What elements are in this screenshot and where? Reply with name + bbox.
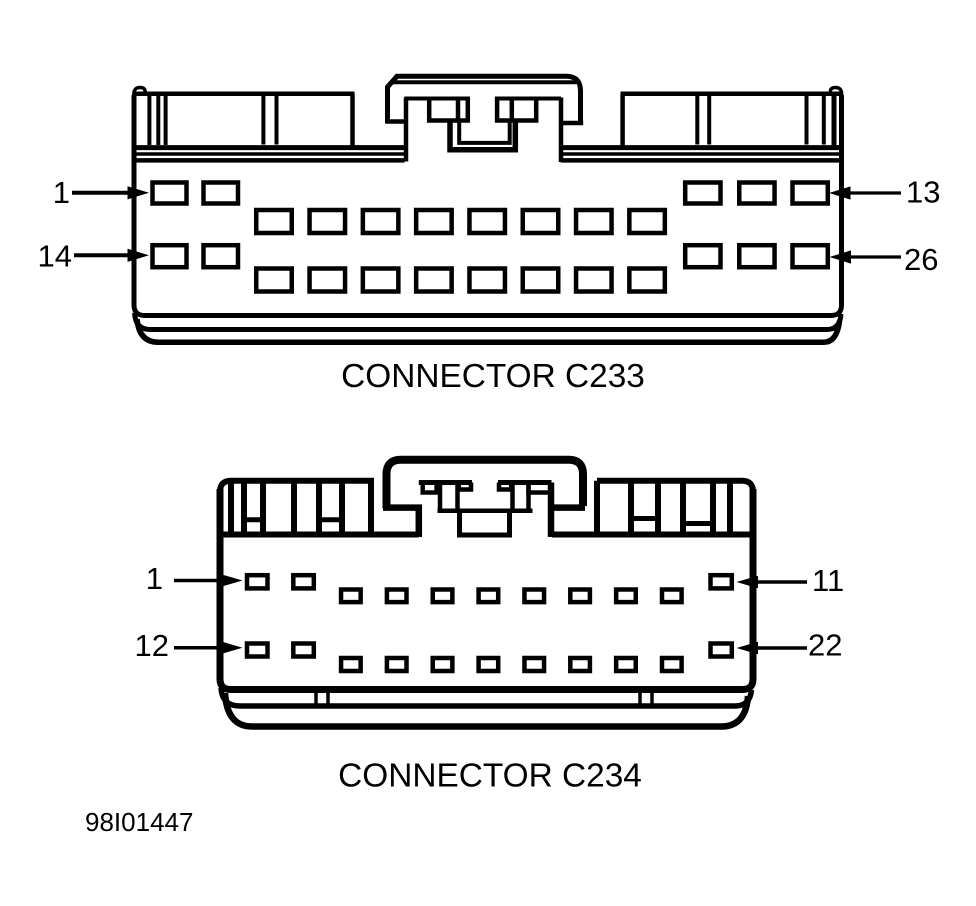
- svg-text:12: 12: [135, 628, 169, 663]
- svg-text:22: 22: [808, 628, 842, 663]
- svg-text:1: 1: [53, 175, 70, 210]
- svg-text:13: 13: [906, 175, 940, 210]
- svg-text:1: 1: [146, 561, 163, 596]
- svg-text:98I01447: 98I01447: [85, 807, 193, 837]
- svg-text:26: 26: [904, 242, 938, 277]
- svg-text:CONNECTOR C234: CONNECTOR C234: [338, 758, 642, 795]
- svg-text:14: 14: [38, 238, 72, 273]
- svg-text:CONNECTOR C233: CONNECTOR C233: [341, 358, 645, 395]
- svg-text:11: 11: [812, 563, 844, 598]
